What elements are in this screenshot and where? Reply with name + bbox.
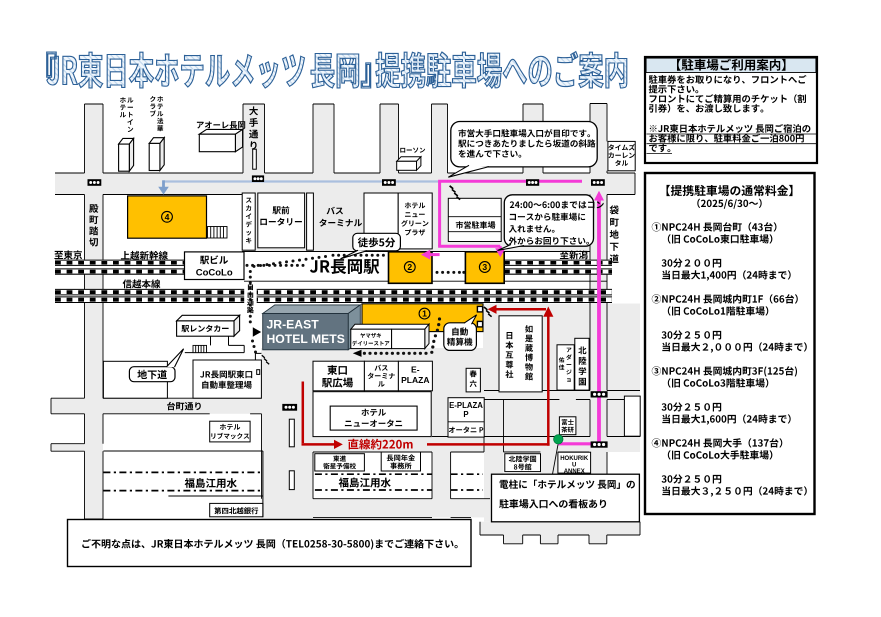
svg-text:P: P: [463, 410, 468, 419]
svg-text:U: U: [572, 463, 576, 469]
svg-text:4: 4: [165, 212, 170, 222]
svg-text:PLAZA: PLAZA: [401, 375, 429, 385]
svg-text:ANNEX: ANNEX: [564, 469, 585, 475]
svg-text:E-: E-: [411, 365, 420, 375]
svg-text:1: 1: [422, 309, 427, 319]
svg-text:JR-EAST: JR-EAST: [267, 318, 320, 332]
svg-text:CoCoLo: CoCoLo: [196, 268, 233, 279]
svg-text:HOKURIK: HOKURIK: [560, 456, 589, 462]
svg-text:3: 3: [482, 262, 487, 272]
svg-text:2: 2: [407, 262, 412, 272]
svg-text:E-PLAZA: E-PLAZA: [449, 401, 483, 410]
svg-text:HOTEL METS: HOTEL METS: [267, 332, 345, 346]
